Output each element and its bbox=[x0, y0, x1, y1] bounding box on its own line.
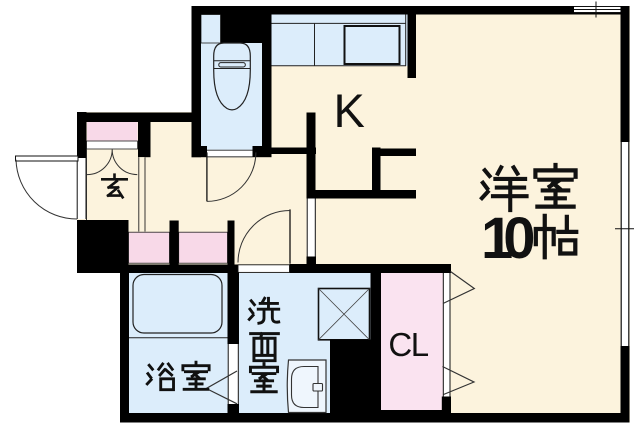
svg-text:CL: CL bbox=[388, 326, 428, 363]
svg-text:10: 10 bbox=[481, 206, 533, 271]
svg-text:K: K bbox=[334, 84, 365, 137]
